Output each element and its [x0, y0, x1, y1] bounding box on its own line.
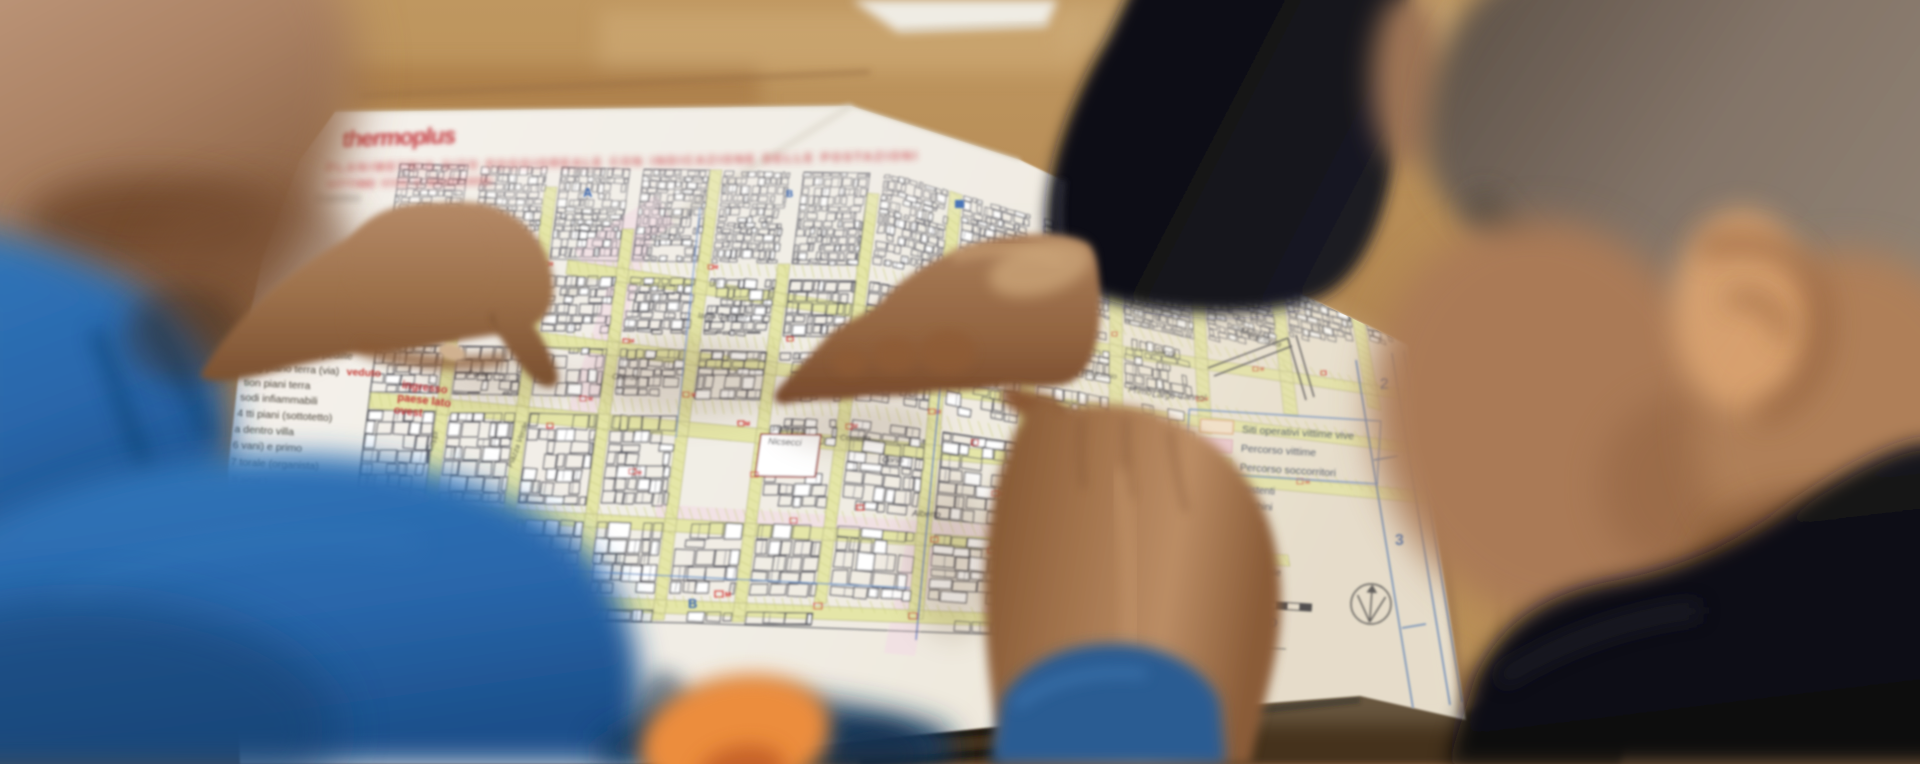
svg-text:B: B: [786, 189, 793, 200]
svg-text:thermoplus: thermoplus: [341, 122, 455, 152]
svg-text:B: B: [688, 596, 697, 611]
svg-text:veduto: veduto: [346, 366, 381, 380]
svg-text:Corso: Corso: [882, 455, 904, 465]
svg-text:M: M: [725, 592, 731, 599]
svg-text:M: M: [745, 422, 750, 428]
svg-text:M: M: [637, 471, 642, 477]
svg-text:A: A: [583, 185, 593, 200]
svg-text:M: M: [714, 265, 718, 271]
svg-text:M: M: [588, 397, 593, 403]
svg-text:M: M: [630, 339, 634, 345]
svg-text:larga Castello: larga Castello: [698, 311, 748, 322]
